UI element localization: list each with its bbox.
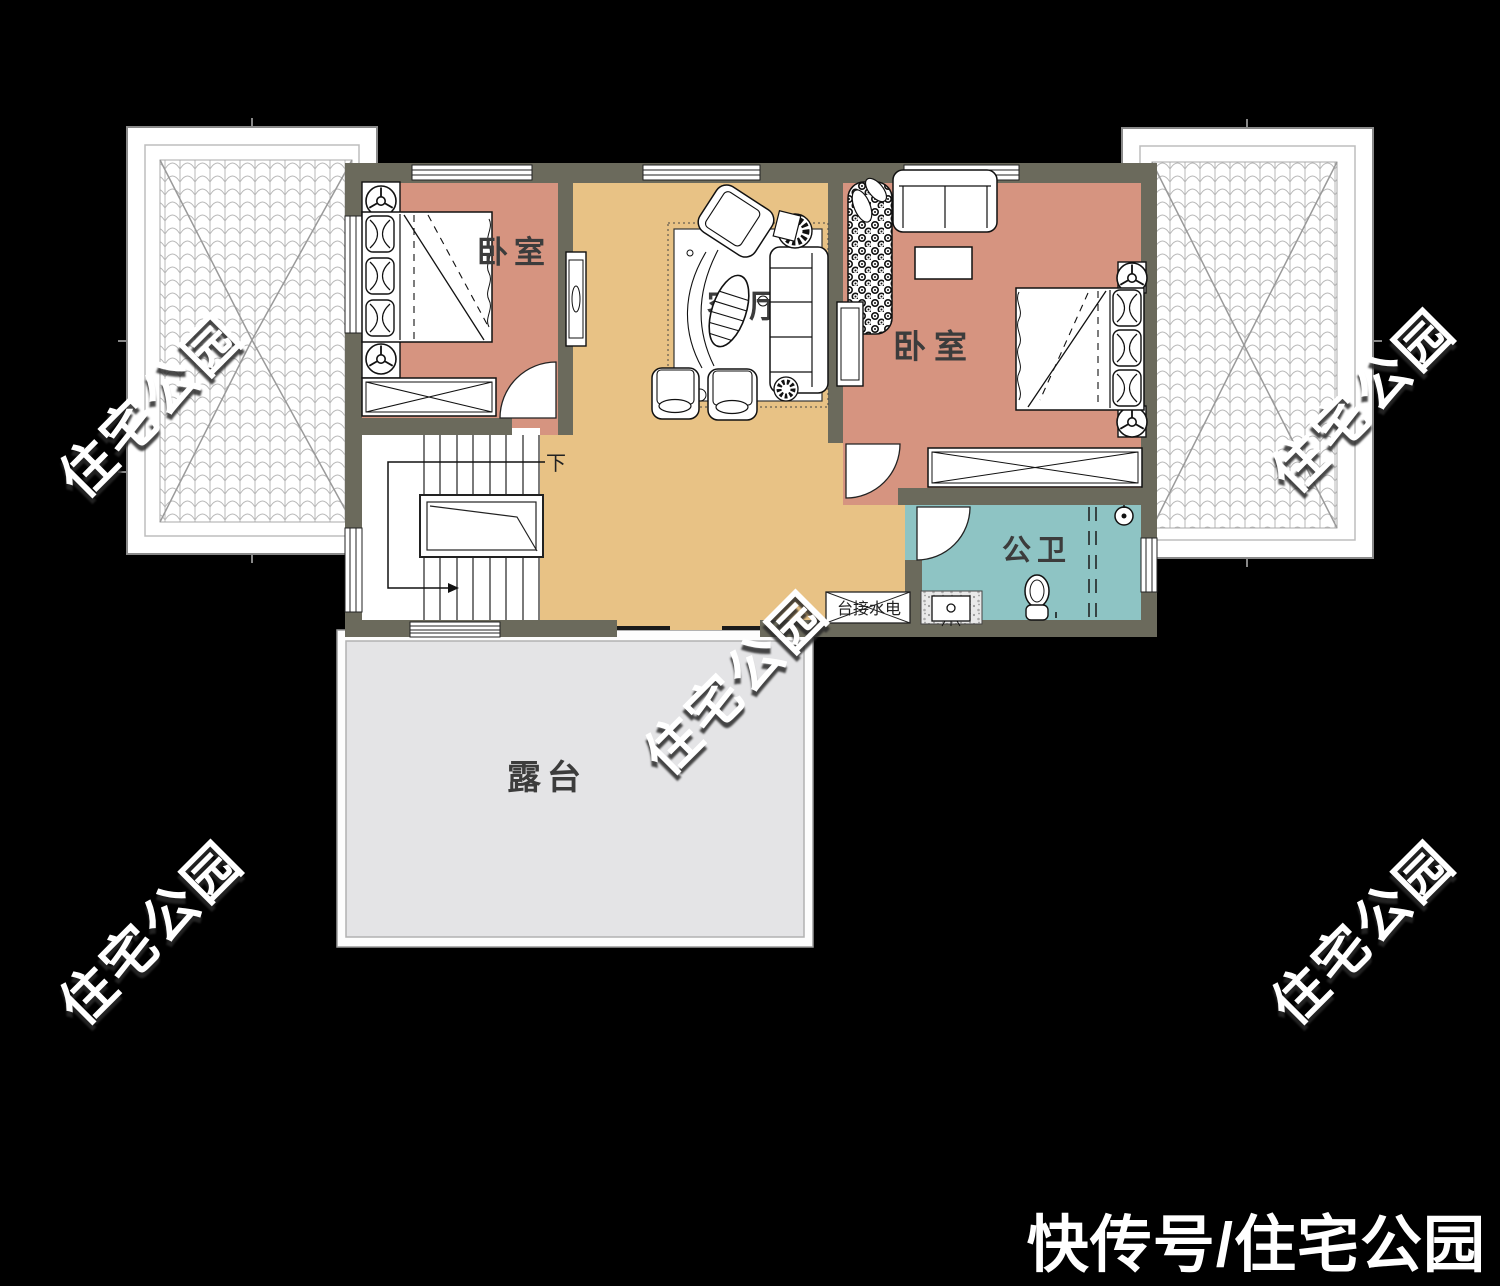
wardrobe-right (928, 448, 1142, 487)
terrace-label: 露台 (507, 758, 587, 798)
laundry-label: 台接水电 (837, 599, 901, 618)
bed-right (1016, 288, 1144, 410)
window-bottom-stairs (410, 622, 500, 637)
window-left-stairs (345, 528, 362, 612)
wall-bedroomL-stairs (345, 418, 512, 435)
floor-plan-drawing: 露台 (0, 0, 1500, 1286)
window-left-bedroomL (345, 216, 362, 333)
vanity-sink (921, 591, 982, 626)
plant-fan-small (774, 377, 798, 401)
caption: 快传号/住宅公园 (1027, 1194, 1486, 1284)
bed-left (362, 212, 492, 342)
sofa-three-seat (770, 247, 828, 393)
roof-left (118, 118, 377, 563)
wall-bedroomR-bathroom (898, 488, 1157, 505)
bedroom-left-furniture (362, 182, 496, 416)
stairs-down-label: 下 (546, 451, 566, 475)
terrace: 露台 (337, 630, 813, 947)
bedroom-left-label: 卧室 (477, 235, 551, 271)
sofa-two-seat (893, 170, 997, 232)
armchair-bottom-2 (708, 369, 757, 420)
bedroom-right-label: 卧室 (893, 327, 975, 366)
window-bathroom-right (1141, 538, 1157, 592)
terrace-door-threshold-left (617, 626, 670, 630)
wardrobe-left (362, 378, 496, 416)
fan-icon (366, 344, 396, 374)
window-top-bedroomL (412, 165, 532, 180)
fan-icon (1117, 407, 1147, 437)
tv-cabinet-living (566, 252, 586, 346)
bathroom-label: 公卫 (1002, 533, 1072, 567)
floor-plan-page: 露台 (0, 0, 1500, 1286)
armchair-bottom-1 (652, 368, 699, 419)
roof-left-tiles (160, 160, 352, 522)
roof-right (1122, 119, 1382, 567)
coffee-table-right (915, 247, 972, 279)
terrace-door-threshold-right (722, 626, 760, 630)
tv-cabinet-bedroomR (837, 302, 863, 386)
laundry-counter: 台接水电 (826, 592, 910, 623)
window-top-living (643, 165, 760, 180)
